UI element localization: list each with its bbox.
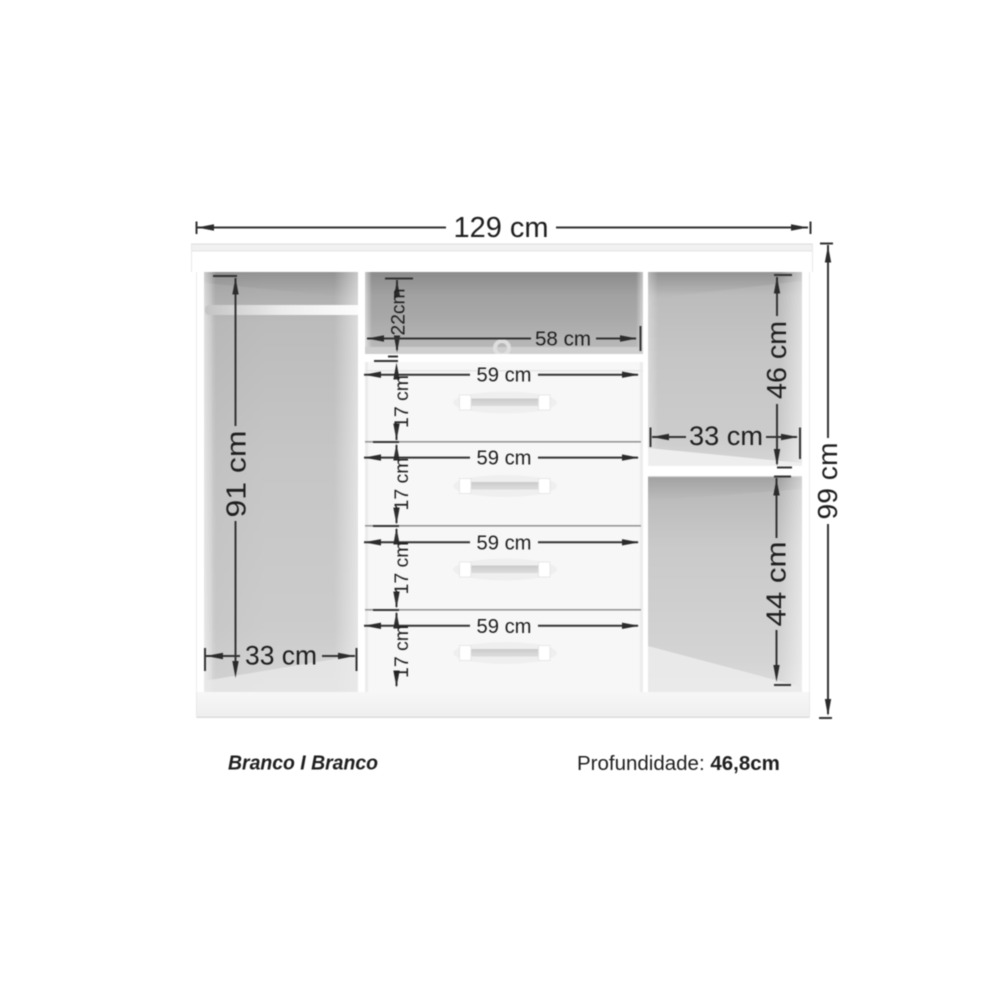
svg-text:33 cm: 33 cm	[245, 641, 317, 671]
svg-text:59 cm: 59 cm	[477, 448, 532, 470]
svg-text:46 cm: 46 cm	[761, 321, 792, 399]
svg-text:58 cm: 58 cm	[535, 329, 591, 351]
svg-text:129 cm: 129 cm	[454, 212, 549, 244]
svg-text:17 cm: 17 cm	[391, 458, 413, 511]
svg-text:99 cm: 99 cm	[812, 443, 843, 520]
svg-text:Branco I Branco: Branco I Branco	[228, 752, 378, 775]
svg-text:17 cm: 17 cm	[391, 542, 413, 595]
svg-text:59 cm: 59 cm	[477, 616, 532, 638]
svg-text:33 cm: 33 cm	[689, 421, 763, 451]
svg-text:Profundidade: 46,8cm: Profundidade: 46,8cm	[577, 752, 780, 775]
svg-text:17 cm: 17 cm	[391, 375, 413, 428]
svg-text:59 cm: 59 cm	[477, 532, 532, 554]
svg-text:44 cm: 44 cm	[761, 542, 792, 627]
svg-text:17 cm: 17 cm	[391, 625, 413, 678]
svg-text:91 cm: 91 cm	[221, 431, 252, 518]
svg-text:59 cm: 59 cm	[477, 365, 532, 387]
svg-text:22cm: 22cm	[388, 289, 410, 336]
